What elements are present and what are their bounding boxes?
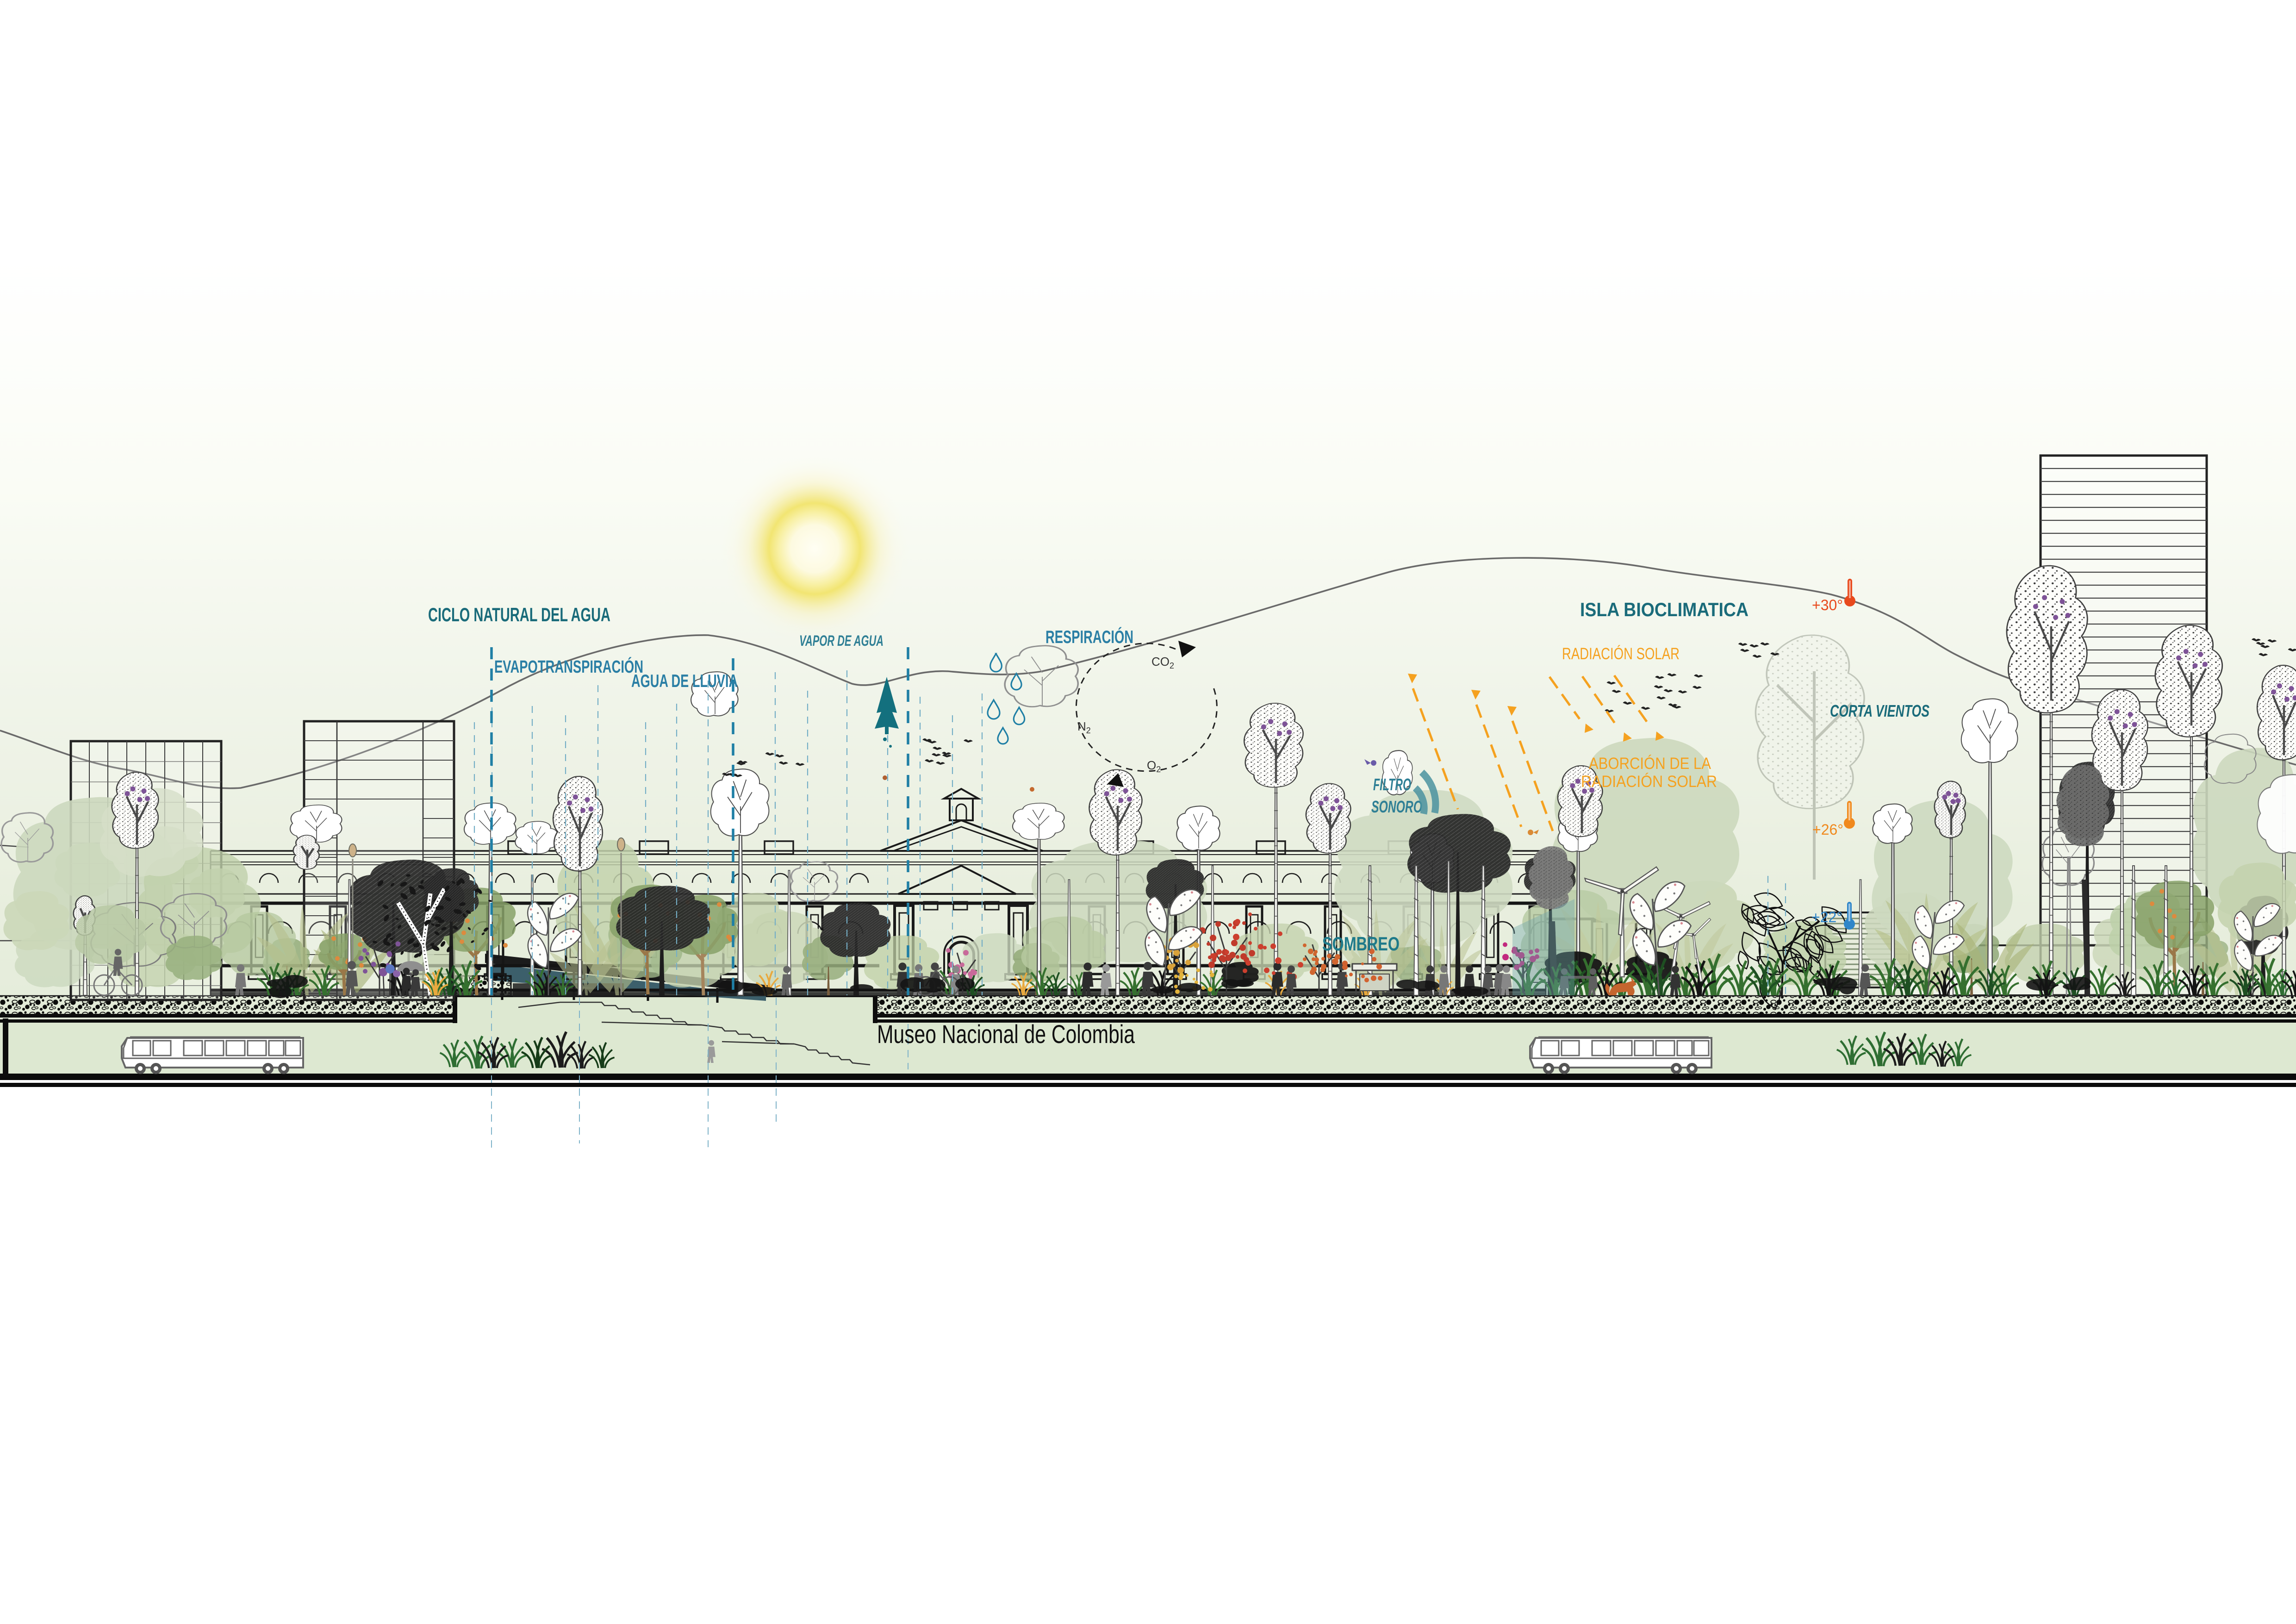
svg-text:AGUA DE LLUVIA: AGUA DE LLUVIA (631, 671, 738, 691)
svg-text:+30°: +30° (1812, 597, 1843, 613)
svg-text:ISLA BIOCLIMATICA: ISLA BIOCLIMATICA (1580, 599, 1748, 620)
svg-text:VAPOR DE AGUA: VAPOR DE AGUA (799, 632, 884, 649)
svg-text:EVAPOTRANSPIRACIÓN: EVAPOTRANSPIRACIÓN (494, 656, 643, 677)
svg-text:RADIACIÓN SOLAR: RADIACIÓN SOLAR (1581, 773, 1717, 791)
svg-text:+22°: +22° (1811, 909, 1842, 925)
svg-text:SOMBREO: SOMBREO (1322, 933, 1400, 955)
svg-text:CICLO NATURAL DEL AGUA: CICLO NATURAL DEL AGUA (428, 604, 610, 625)
svg-text:RADIACIÓN SOLAR: RADIACIÓN SOLAR (1562, 645, 1680, 663)
svg-text:SONORO: SONORO (1371, 797, 1422, 816)
svg-text:+26°: +26° (1812, 821, 1843, 838)
svg-text:FILTRO: FILTRO (1373, 775, 1411, 794)
svg-text:CORTA VIENTOS: CORTA VIENTOS (1830, 701, 1929, 720)
svg-text:Museo Nacional de Colombia: Museo Nacional de Colombia (877, 1019, 1135, 1049)
svg-text:RESPIRACIÓN: RESPIRACIÓN (1045, 627, 1133, 647)
svg-text:ABORCIÓN DE LA: ABORCIÓN DE LA (1589, 755, 1711, 773)
